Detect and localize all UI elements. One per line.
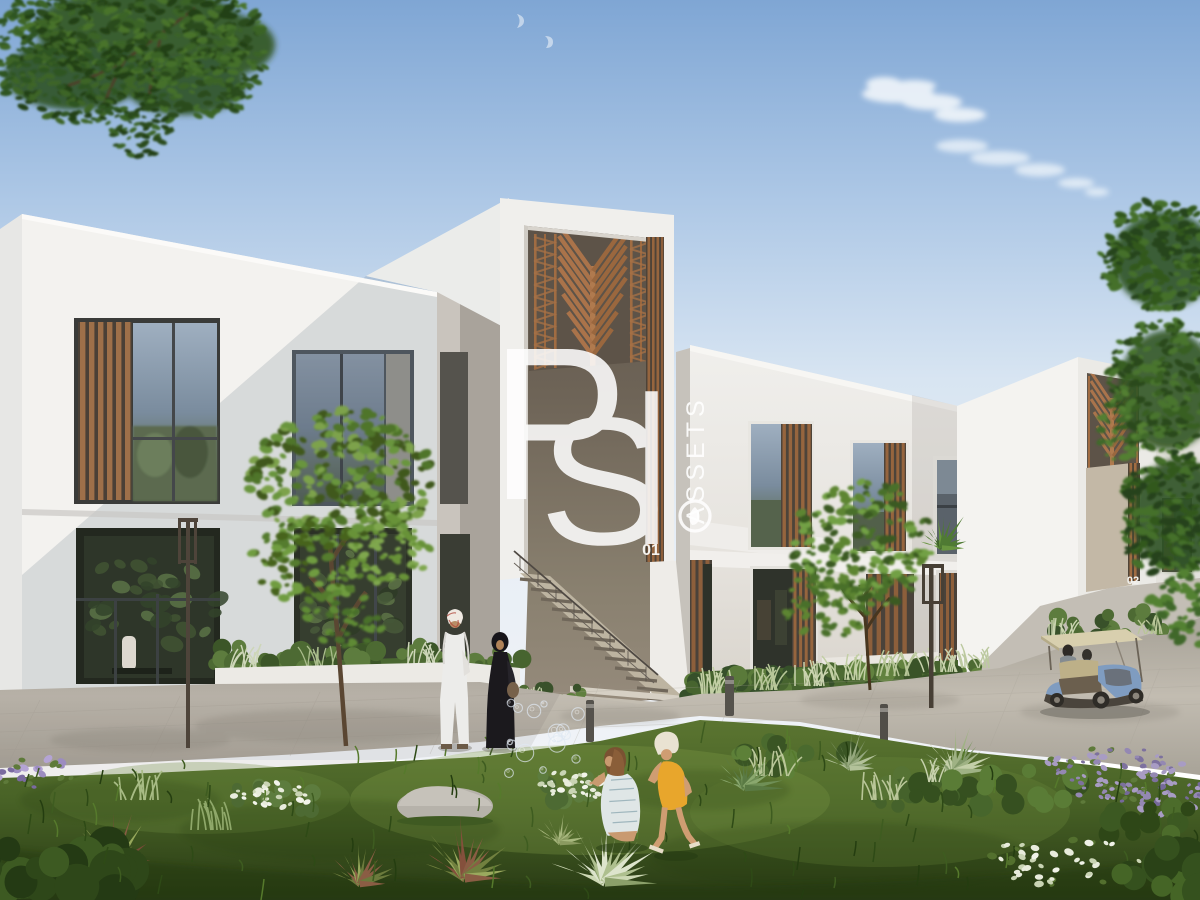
svg-text:I: I	[633, 343, 670, 592]
